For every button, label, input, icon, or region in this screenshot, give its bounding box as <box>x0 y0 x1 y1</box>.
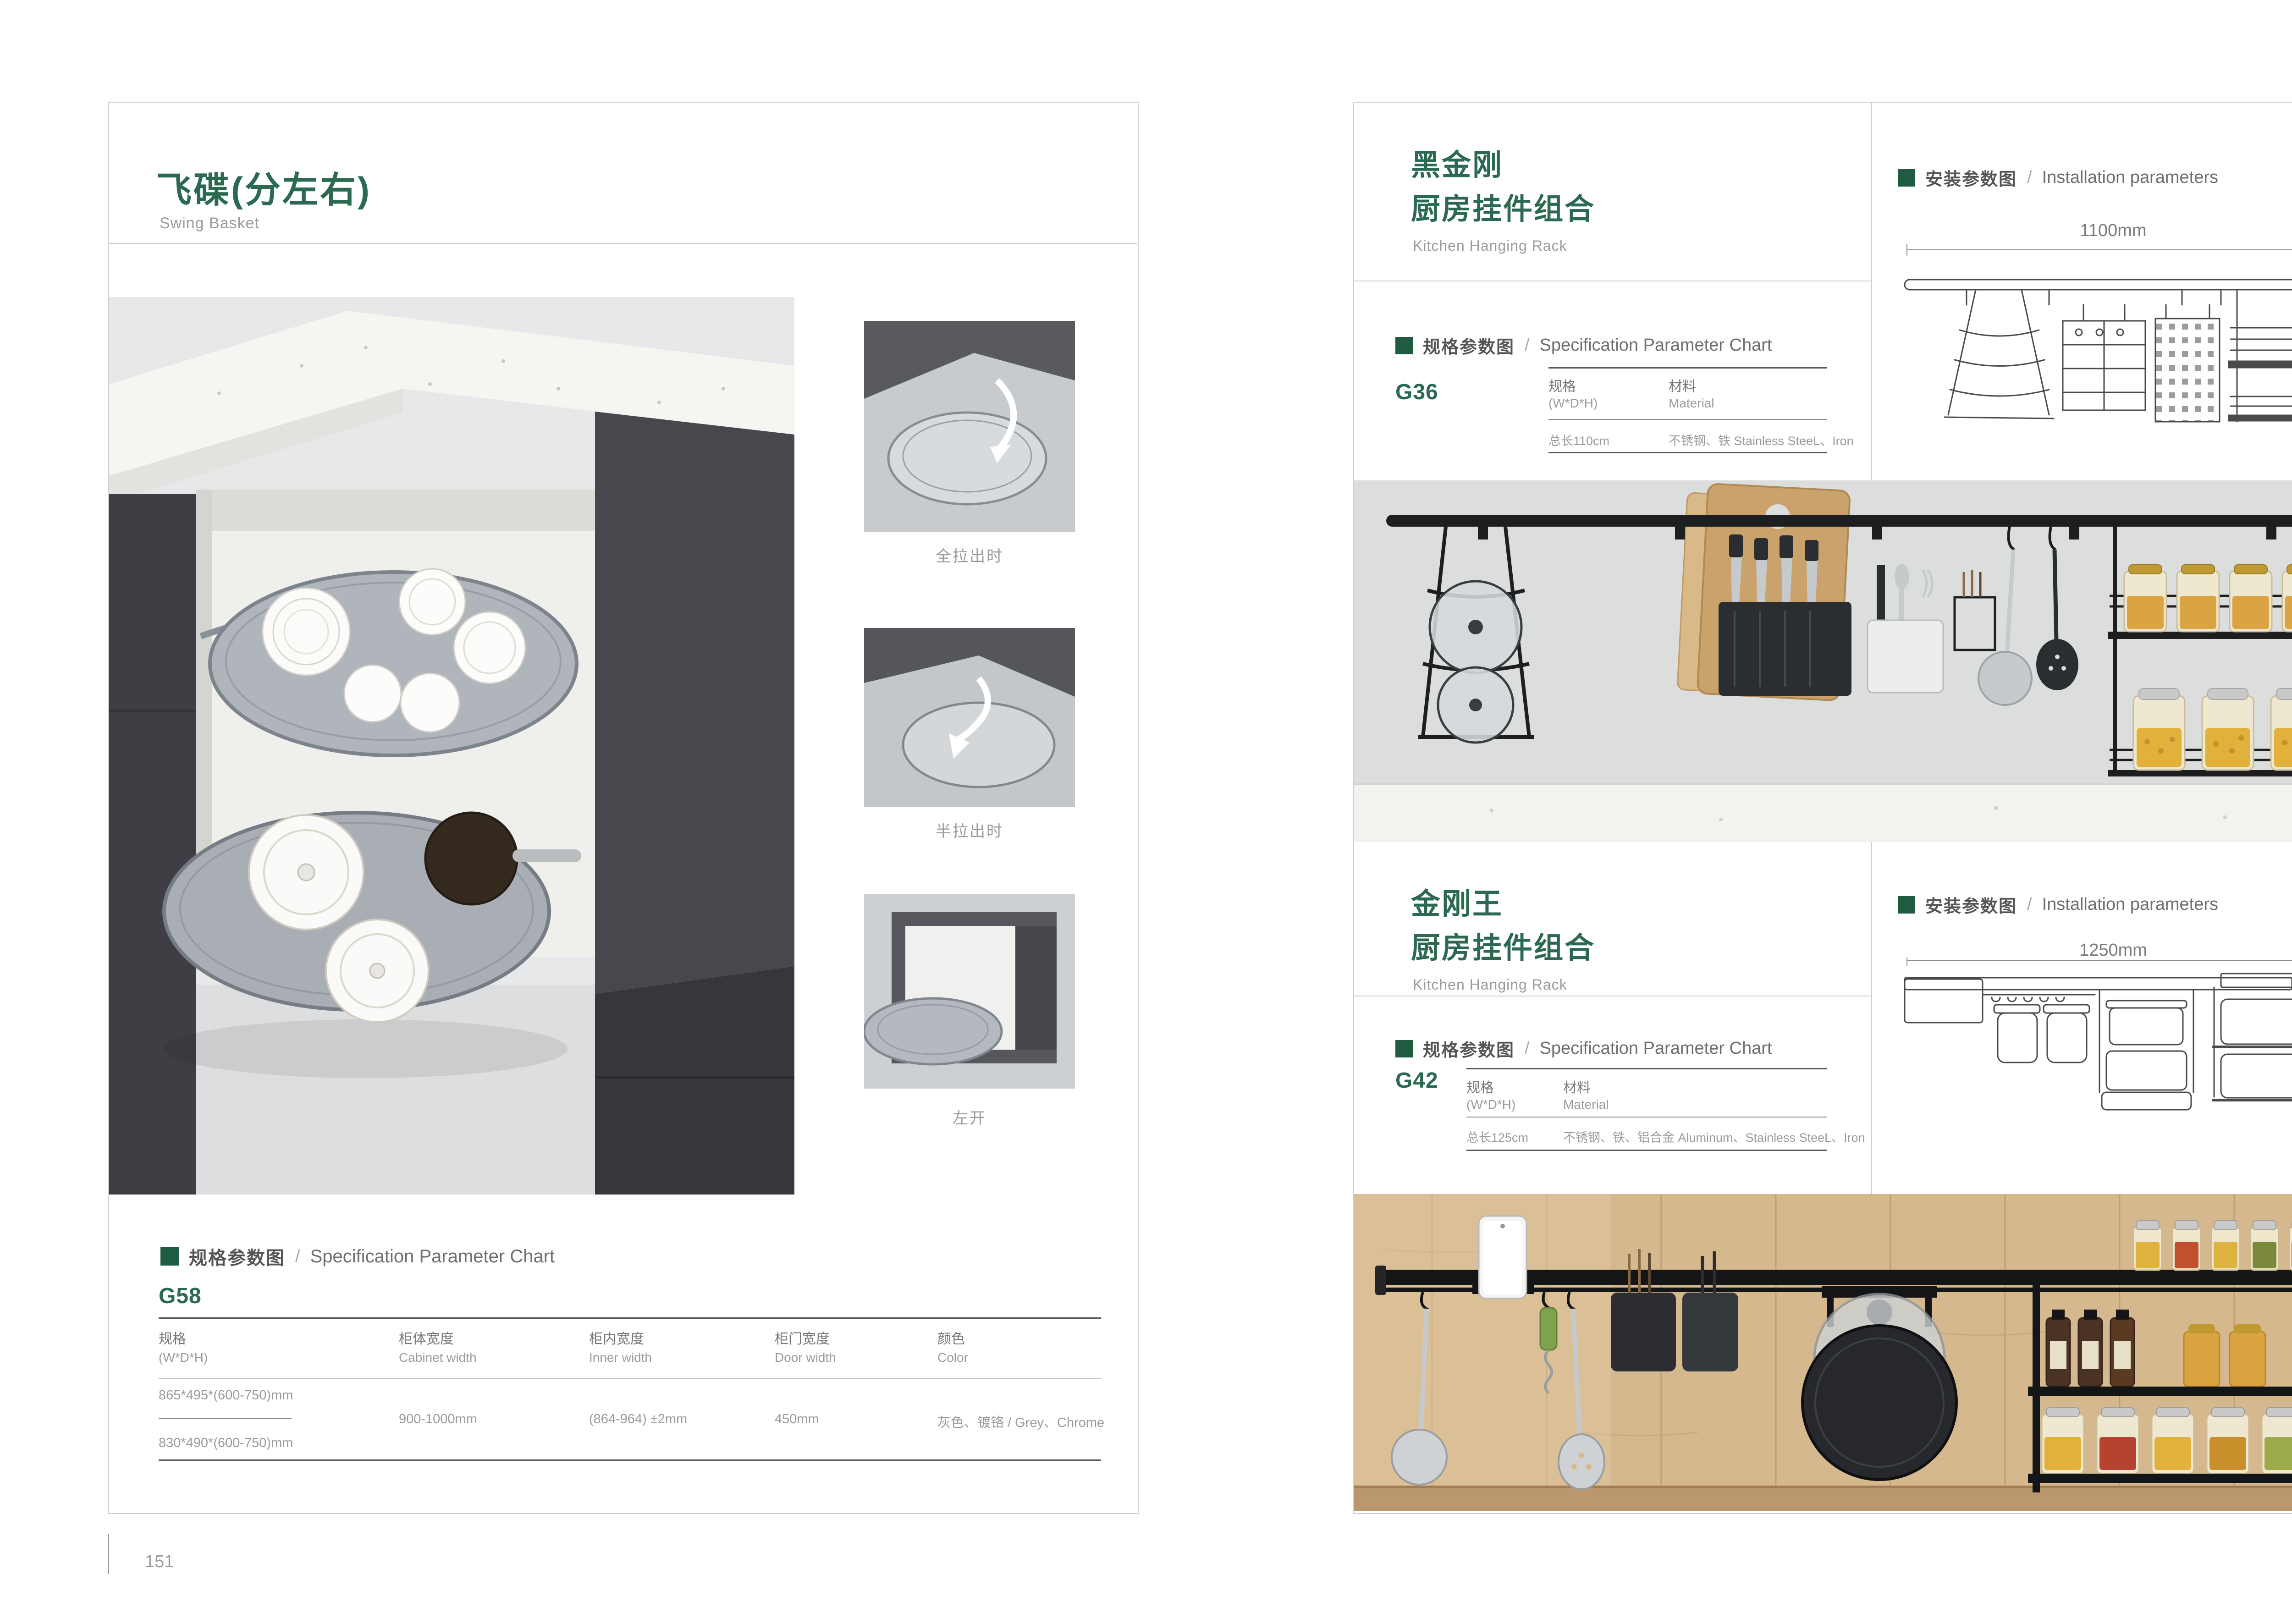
s1-install-sep: / <box>2027 168 2032 187</box>
section1-spec-zh: 规格参数图 <box>1423 333 1515 358</box>
s1-install-zh: 安装参数图 <box>1925 165 2017 190</box>
table-rule <box>1466 1117 1827 1118</box>
section-divider <box>1353 996 1871 996</box>
s1-col1-zh: 规格 <box>1548 375 1576 395</box>
cell-spec-2: 830*490*(600-750)mm <box>159 1436 293 1451</box>
swing-basket-photo <box>109 297 794 1195</box>
thumb-left-open <box>864 894 1075 1089</box>
col-door-zh: 柜门宽度 <box>775 1327 830 1348</box>
s1-spec-value: 总长110cm <box>1548 431 1609 449</box>
section1-model: G36 <box>1395 380 1438 405</box>
title-divider <box>108 243 1137 244</box>
col-inner-zh: 柜内宽度 <box>589 1327 644 1348</box>
col-spec-en: (W*D*H) <box>159 1350 208 1365</box>
col-inner-en: Inner width <box>589 1350 652 1365</box>
section1-spec-header: 规格参数图 / Specification Parameter Chart <box>1395 333 1772 358</box>
thumb-full-pullout <box>864 321 1075 532</box>
section-bullet-icon <box>1898 896 1915 914</box>
section-bullet-icon <box>1395 1040 1413 1057</box>
s2-col1-zh: 规格 <box>1466 1076 1494 1096</box>
table-rule <box>159 1378 1101 1379</box>
section2-title-line1: 金刚王 <box>1411 882 1595 926</box>
s1-col1-en: (W*D*H) <box>1548 396 1598 411</box>
cell-cabinet-width: 900-1000mm <box>399 1412 477 1427</box>
s2-col2-zh: 材料 <box>1563 1076 1591 1096</box>
left-page-subtitle: Swing Basket <box>160 215 259 232</box>
section1-install-header: 安装参数图 / Installation parameters <box>1898 165 2218 190</box>
column-divider <box>1871 102 1872 480</box>
table-rule <box>1548 367 1827 369</box>
s2-spec-value: 总长125cm <box>1466 1128 1528 1145</box>
thumb-caption-left-open: 左开 <box>864 1106 1075 1128</box>
thumb-caption-half: 半拉出时 <box>864 819 1075 841</box>
section-bullet-icon <box>160 1247 179 1266</box>
left-page-number: 151 <box>145 1552 174 1572</box>
col-color-zh: 颜色 <box>937 1327 965 1348</box>
table-rule <box>1466 1068 1827 1069</box>
cell-door-width: 450mm <box>775 1412 819 1427</box>
col-spec-zh: 规格 <box>159 1327 186 1348</box>
section1-title-line1: 黑金刚 <box>1411 143 1595 187</box>
col-door-en: Door width <box>775 1350 836 1365</box>
catalog-spread: 飞碟(分左右) Swing Basket <box>0 0 2292 1624</box>
left-spec-header-zh: 规格参数图 <box>189 1243 285 1270</box>
thumb-half-pullout <box>864 628 1075 807</box>
cell-spec-1: 865*495*(600-750)mm <box>159 1388 293 1403</box>
section2-spec-zh: 规格参数图 <box>1423 1036 1515 1061</box>
hanging-rack-photo-2 <box>1354 1194 2292 1511</box>
section-divider <box>1353 281 1871 281</box>
folio-tick-left <box>108 1534 109 1574</box>
s2-install-en: Installation parameters <box>2042 895 2218 914</box>
s2-col1-en: (W*D*H) <box>1466 1097 1515 1112</box>
left-spec-header-sep: / <box>295 1247 300 1266</box>
section1-title: 黑金刚 厨房挂件组合 <box>1411 143 1595 231</box>
table-rule <box>159 1459 1101 1461</box>
s1-col2-en: Material <box>1669 396 1714 411</box>
install-diagram-2 <box>1898 957 2292 1113</box>
section2-model: G42 <box>1395 1068 1438 1093</box>
cell-color: 灰色、镀铬 / Grey、Chrome <box>937 1412 1104 1431</box>
section1-spec-en: Specification Parameter Chart <box>1540 336 1772 355</box>
section-bullet-icon <box>1395 337 1413 354</box>
column-divider <box>1871 842 1872 1194</box>
left-spec-header: 规格参数图 / Specification Parameter Chart <box>160 1243 555 1270</box>
left-spec-header-en: Specification Parameter Chart <box>310 1246 555 1267</box>
left-model-code: G58 <box>159 1283 202 1309</box>
section1-title-line2: 厨房挂件组合 <box>1411 187 1595 231</box>
table-rule <box>159 1317 1101 1319</box>
install-diagram-1 <box>1898 238 2292 449</box>
left-page-title: 飞碟(分左右) <box>156 161 371 213</box>
col-cabinet-en: Cabinet width <box>399 1350 477 1365</box>
s2-material-value: 不锈钢、铁、铝合金 Aluminum、Stainless SteeL、Iron <box>1563 1128 1865 1145</box>
s1-install-en: Installation parameters <box>2042 168 2218 187</box>
table-rule <box>1466 1150 1827 1151</box>
swing-basket-photo-art <box>109 297 794 1195</box>
s1-dim-width: 1100mm <box>2044 221 2182 241</box>
col-cabinet-zh: 柜体宽度 <box>399 1327 454 1348</box>
table-rule <box>1548 419 1827 420</box>
s2-install-sep: / <box>2027 895 2032 914</box>
table-rule <box>1548 452 1827 453</box>
section1-spec-sep: / <box>1525 336 1530 355</box>
section2-install-header: 安装参数图 / Installation parameters <box>1898 892 2218 917</box>
col-color-en: Color <box>937 1350 968 1365</box>
section2-spec-en: Specification Parameter Chart <box>1540 1039 1772 1058</box>
s2-install-zh: 安装参数图 <box>1925 892 2017 917</box>
spec-row-divider <box>159 1418 292 1419</box>
section2-title-line2: 厨房挂件组合 <box>1411 926 1595 970</box>
section1-subtitle: Kitchen Hanging Rack <box>1413 237 1567 254</box>
cell-inner-width: (864-964) ±2mm <box>589 1412 687 1427</box>
section-bullet-icon <box>1898 169 1915 187</box>
section2-subtitle: Kitchen Hanging Rack <box>1413 976 1567 993</box>
hanging-rack-photo-1 <box>1354 480 2292 842</box>
s2-col2-en: Material <box>1563 1097 1609 1112</box>
s1-material-value: 不锈钢、铁 Stainless SteeL、Iron <box>1669 431 1854 449</box>
section2-spec-header: 规格参数图 / Specification Parameter Chart <box>1395 1036 1772 1061</box>
section2-title: 金刚王 厨房挂件组合 <box>1411 882 1595 970</box>
section2-spec-sep: / <box>1525 1039 1530 1058</box>
s1-col2-zh: 材料 <box>1669 375 1696 395</box>
thumb-caption-full: 全拉出时 <box>864 544 1075 566</box>
